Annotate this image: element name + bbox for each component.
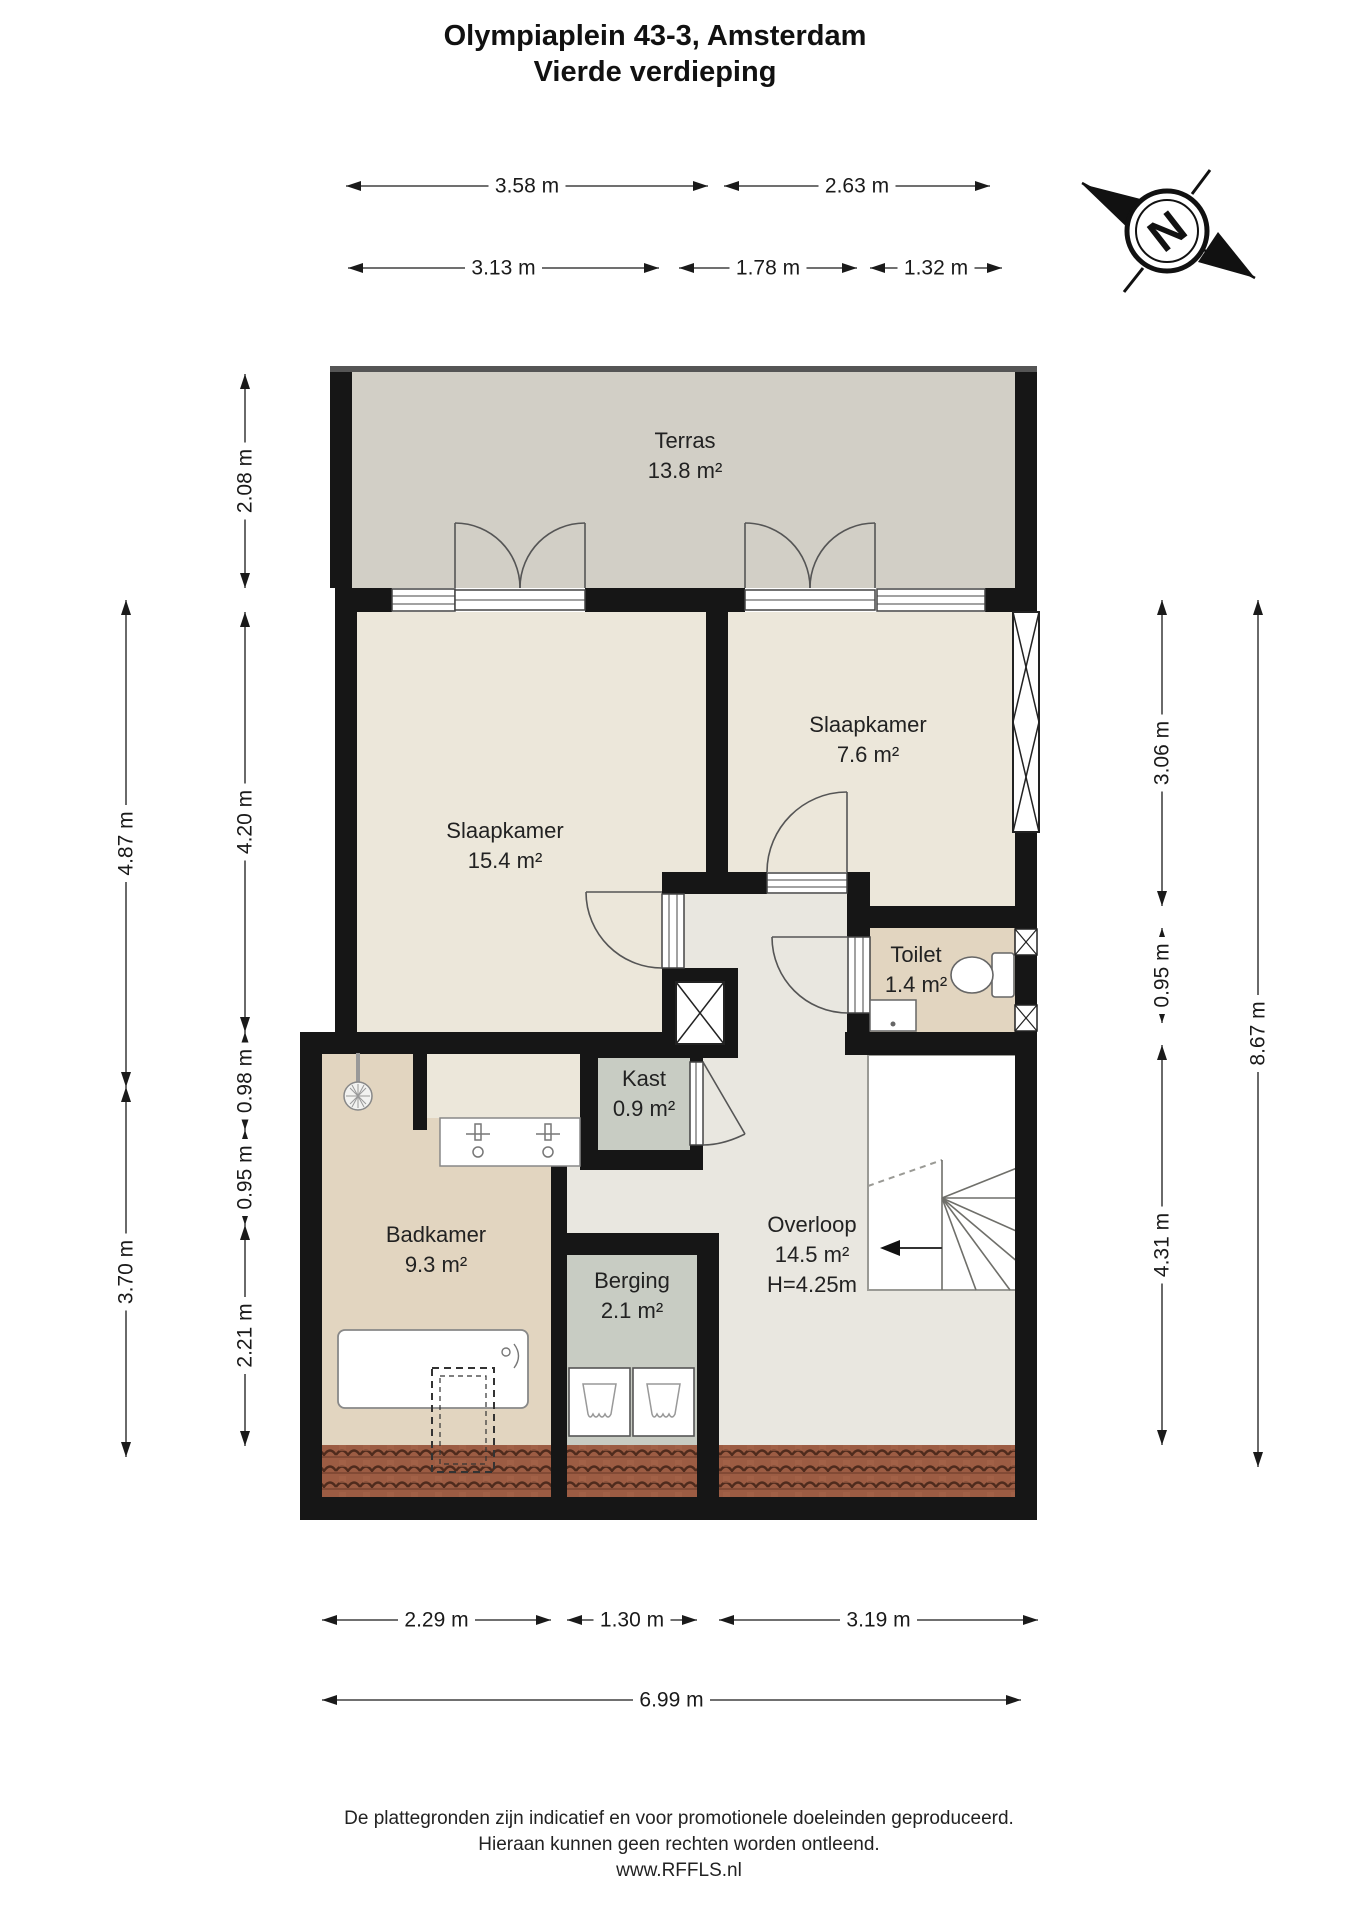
dimension-vertical: 4.87 m <box>112 600 140 1087</box>
duct-box <box>1015 1005 1037 1031</box>
dimension-horizontal: 6.99 m <box>322 1686 1021 1714</box>
duct-box <box>1015 929 1037 955</box>
stairwell <box>868 1055 1032 1290</box>
toilet-sink <box>870 1000 916 1031</box>
dimension-vertical: 8.67 m <box>1244 600 1272 1467</box>
dimension-value: 1.30 m <box>600 1609 664 1632</box>
door-glazing <box>767 873 847 893</box>
terras-door-threshold <box>455 590 585 610</box>
riser-shaft <box>676 982 724 1044</box>
dimension-value: 4.31 m <box>1151 1213 1174 1277</box>
dimension-value: 4.87 m <box>115 811 138 875</box>
dimension-vertical: 2.21 m <box>231 1225 259 1446</box>
door-frame <box>690 1062 703 1145</box>
room-name: Kast <box>622 1066 666 1091</box>
room-name: Slaapkamer <box>809 712 926 737</box>
dimension-value: 3.06 m <box>1151 721 1174 785</box>
dimension-value: 0.98 m <box>234 1049 257 1113</box>
dimension-value: 1.32 m <box>904 257 968 280</box>
roof-tile-band <box>322 1445 1015 1497</box>
compass-rose: N <box>1082 170 1255 292</box>
dimension-vertical: 4.20 m <box>231 612 259 1032</box>
washing-machine <box>569 1368 630 1436</box>
disclaimer-line-2: Hieraan kunnen geen rechten worden ontle… <box>0 1832 1358 1858</box>
dimension-vertical: 3.70 m <box>112 1087 140 1457</box>
footer-website: www.RFFLS.nl <box>0 1858 1358 1884</box>
room-name: Berging <box>594 1268 670 1293</box>
room-area: 1.4 m² <box>885 972 947 997</box>
dimension-horizontal: 2.63 m <box>724 172 990 200</box>
door-frame <box>848 937 870 1013</box>
door-frame <box>662 894 684 968</box>
dimension-value: 3.19 m <box>846 1609 910 1632</box>
dimension-value: 0.95 m <box>234 1145 257 1209</box>
disclaimer-line-1: De plattegronden zijn indicatief en voor… <box>0 1806 1358 1832</box>
dimension-value: 0.95 m <box>1151 943 1174 1007</box>
dimension-vertical: 0.98 m <box>231 1032 259 1130</box>
room-name: Toilet <box>890 942 941 967</box>
dimension-value: 3.70 m <box>115 1240 138 1304</box>
floorplan-drawing: N Terras13.8 m²Slaapkamer15.4 m²Slaapkam… <box>0 0 1358 1920</box>
dimension-vertical: 0.95 m <box>1148 928 1176 1023</box>
dimension-vertical: 0.95 m <box>231 1130 259 1225</box>
washing-machine <box>633 1368 694 1436</box>
dimension-horizontal: 1.30 m <box>567 1606 697 1634</box>
dimension-horizontal: 1.78 m <box>679 254 857 282</box>
dimension-value: 1.78 m <box>736 257 800 280</box>
badkamer-niche <box>427 1053 580 1118</box>
terras-door-threshold <box>745 590 875 610</box>
dimension-horizontal: 2.29 m <box>322 1606 551 1634</box>
dimension-vertical: 4.31 m <box>1148 1045 1176 1445</box>
room-area: 0.9 m² <box>613 1096 675 1121</box>
dimension-value: 2.08 m <box>234 449 257 513</box>
room-area: 9.3 m² <box>405 1252 467 1277</box>
dimension-horizontal: 1.32 m <box>870 254 1002 282</box>
dimension-value: 2.21 m <box>234 1303 257 1367</box>
room-area: 7.6 m² <box>837 742 899 767</box>
room-name: Badkamer <box>386 1222 486 1247</box>
room-area: 15.4 m² <box>468 848 543 873</box>
cross-braced-window <box>1013 612 1039 832</box>
dimension-value: 4.20 m <box>234 790 257 854</box>
room-area: 2.1 m² <box>601 1298 663 1323</box>
dimension-vertical: 3.06 m <box>1148 600 1176 906</box>
window-strip <box>392 589 455 611</box>
dimension-value: 2.29 m <box>404 1609 468 1632</box>
room-area: H=4.25m <box>767 1272 857 1297</box>
dimension-value: 2.63 m <box>825 175 889 198</box>
room-area: 14.5 m² <box>775 1242 850 1267</box>
room-label-overloop: Overloop14.5 m²H=4.25m <box>767 1212 857 1297</box>
room-name: Terras <box>654 428 715 453</box>
toilet-bowl <box>951 953 1014 997</box>
dimension-vertical: 2.08 m <box>231 374 259 588</box>
dimension-value: 3.13 m <box>471 257 535 280</box>
footer-disclaimer: De plattegronden zijn indicatief en voor… <box>0 1806 1358 1884</box>
room-area: 13.8 m² <box>648 458 723 483</box>
dimension-value: 8.67 m <box>1247 1001 1270 1065</box>
dimension-value: 3.58 m <box>495 175 559 198</box>
terras-edge <box>330 366 1037 372</box>
dimension-horizontal: 3.58 m <box>346 172 708 200</box>
dimension-horizontal: 3.13 m <box>348 254 659 282</box>
double-washbasin <box>440 1118 580 1166</box>
window-strip <box>877 589 985 611</box>
dimension-value: 6.99 m <box>639 1689 703 1712</box>
dimension-horizontal: 3.19 m <box>719 1606 1038 1634</box>
room-name: Overloop <box>767 1212 856 1237</box>
room-name: Slaapkamer <box>446 818 563 843</box>
